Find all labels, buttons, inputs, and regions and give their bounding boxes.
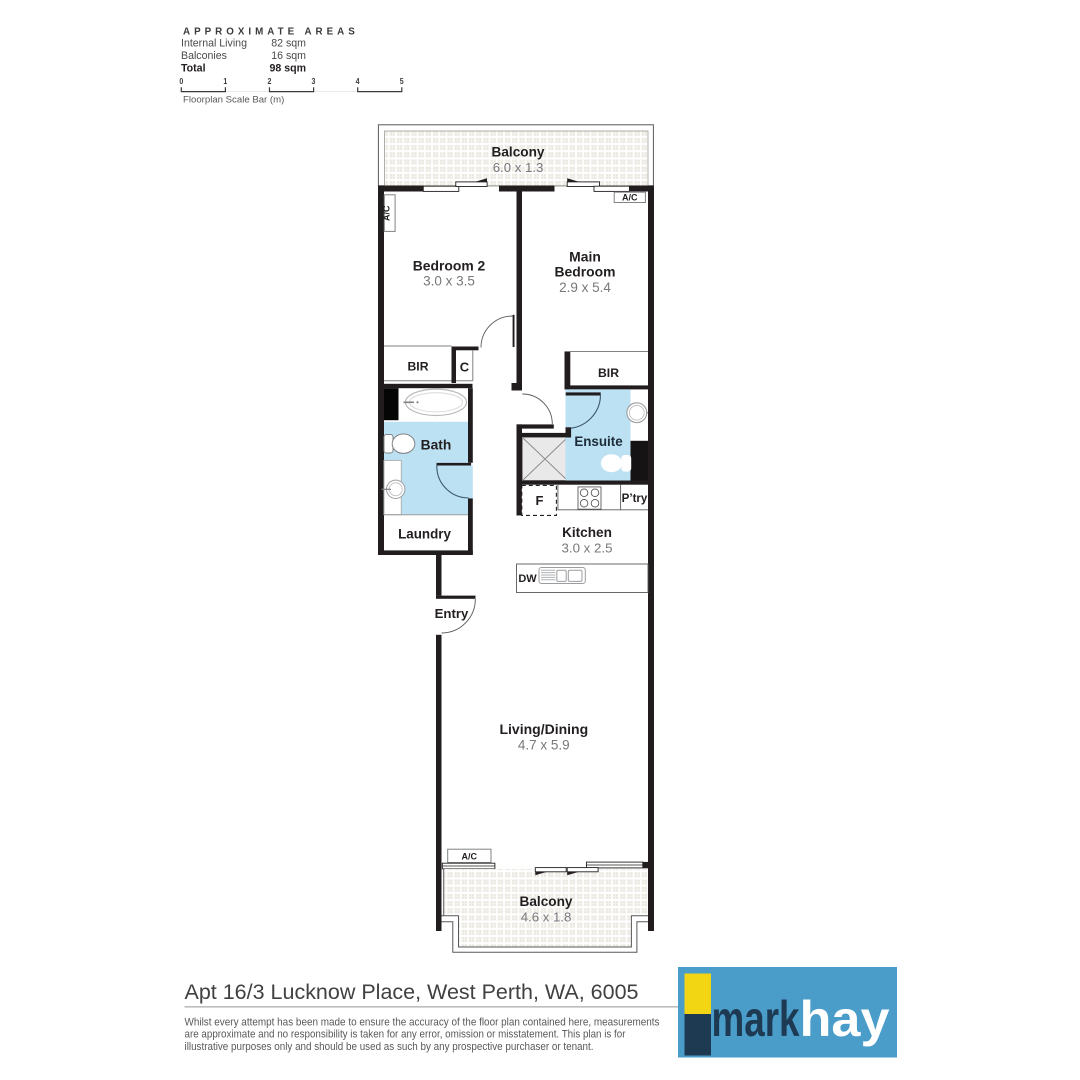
- svg-text:Bath: Bath: [421, 438, 452, 453]
- svg-text:4.6 x 1.8: 4.6 x 1.8: [521, 910, 572, 925]
- svg-text:Balconies: Balconies: [181, 50, 227, 62]
- svg-text:Main: Main: [569, 249, 601, 265]
- svg-text:C: C: [460, 360, 470, 375]
- svg-text:DW: DW: [518, 573, 537, 585]
- svg-text:Whilst every attempt has been: Whilst every attempt has been made to en…: [185, 1017, 660, 1029]
- svg-text:3.0 x 2.5: 3.0 x 2.5: [561, 541, 612, 556]
- svg-text:1: 1: [223, 76, 227, 86]
- svg-text:Balcony: Balcony: [520, 894, 573, 909]
- svg-text:Internal Living: Internal Living: [181, 38, 247, 50]
- svg-text:BIR: BIR: [408, 360, 429, 374]
- svg-text:82 sqm: 82 sqm: [271, 38, 306, 50]
- svg-text:16 sqm: 16 sqm: [271, 50, 306, 62]
- svg-text:A/C: A/C: [462, 852, 478, 862]
- svg-text:Ensuite: Ensuite: [574, 434, 622, 449]
- svg-text:A/C: A/C: [622, 193, 638, 203]
- svg-text:Balcony: Balcony: [492, 145, 545, 160]
- svg-text:Entry: Entry: [435, 606, 469, 621]
- svg-text:Total: Total: [181, 63, 206, 75]
- svg-text:6.0 x 1.3: 6.0 x 1.3: [493, 160, 544, 175]
- svg-text:A/C: A/C: [382, 205, 392, 221]
- svg-text:0: 0: [179, 76, 183, 86]
- svg-text:Bedroom: Bedroom: [555, 264, 616, 280]
- svg-text:Apt 16/3 Lucknow Place, West P: Apt 16/3 Lucknow Place, West Perth, WA, …: [185, 981, 639, 1004]
- svg-text:BIR: BIR: [598, 366, 619, 380]
- svg-text:3: 3: [312, 76, 316, 86]
- svg-text:4.7 x 5.9: 4.7 x 5.9: [518, 738, 570, 753]
- svg-text:2: 2: [267, 76, 271, 86]
- svg-text:hay: hay: [800, 991, 890, 1047]
- svg-text:mark: mark: [712, 991, 800, 1047]
- svg-text:Laundry: Laundry: [398, 527, 451, 542]
- svg-text:Floorplan Scale Bar (m): Floorplan Scale Bar (m): [183, 95, 284, 106]
- svg-text:Kitchen: Kitchen: [562, 525, 612, 540]
- svg-text:P’try: P’try: [622, 492, 648, 505]
- svg-text:5: 5: [400, 76, 404, 86]
- svg-text:APPROXIMATE AREAS: APPROXIMATE AREAS: [183, 27, 359, 38]
- svg-text:Bedroom 2: Bedroom 2: [413, 258, 486, 274]
- svg-text:4: 4: [356, 76, 360, 86]
- svg-text:illustrative purposes only and: illustrative purposes only and should be…: [185, 1041, 594, 1053]
- svg-text:F: F: [536, 493, 544, 508]
- svg-text:3.0 x 3.5: 3.0 x 3.5: [423, 274, 475, 289]
- svg-text:2.9 x 5.4: 2.9 x 5.4: [559, 280, 611, 295]
- svg-text:Living/Dining: Living/Dining: [499, 721, 588, 737]
- svg-text:98 sqm: 98 sqm: [269, 63, 306, 75]
- svg-text:are approximate and no respons: are approximate and no responsibility is…: [185, 1029, 626, 1041]
